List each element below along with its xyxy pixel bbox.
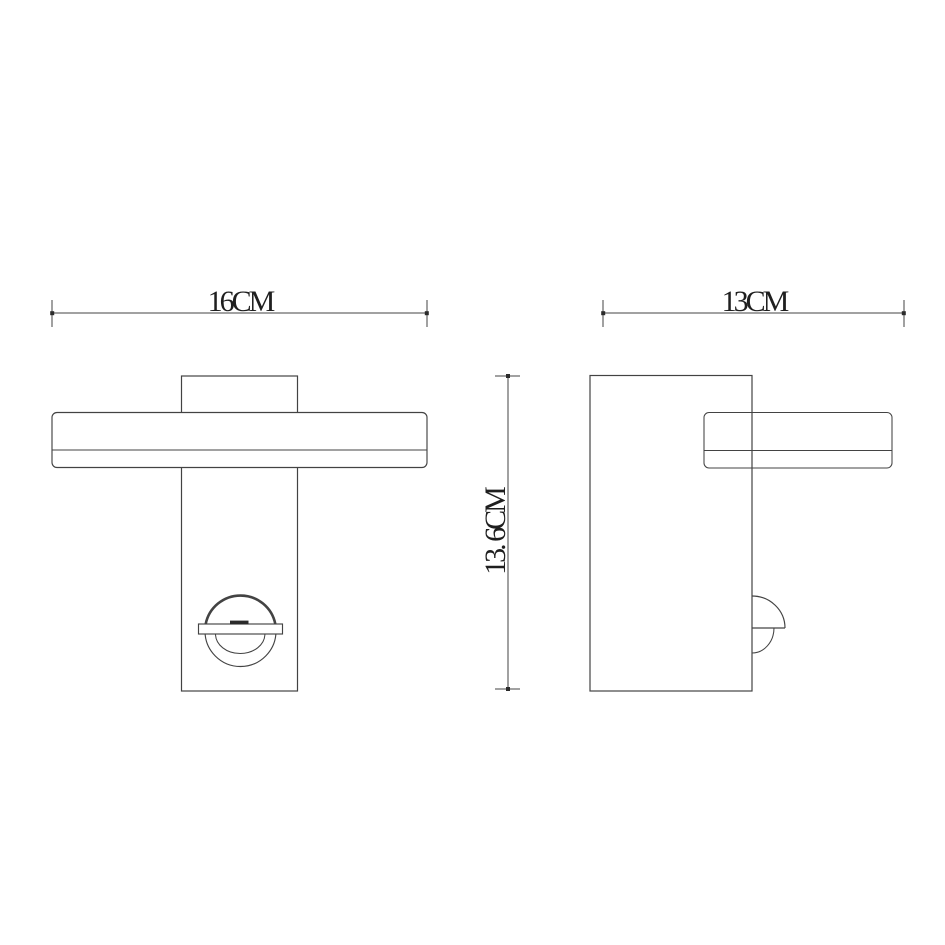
- height-top-tick-mark: [506, 374, 510, 378]
- front-width-left-tick-mark: [50, 311, 54, 315]
- side-depth-label: 13CM: [722, 285, 789, 318]
- side-sensor-inner-arc: [752, 628, 774, 653]
- technical-drawing-canvas: 16CM 13CM 13. 6CM: [0, 0, 945, 945]
- drawing-page: 16CM 13CM 13. 6CM: [0, 0, 945, 945]
- side-view-mounting-bar: [704, 413, 892, 469]
- side-sensor-dome-arc: [752, 596, 785, 628]
- dimension-front-width: 16CM: [50, 285, 429, 327]
- height-bottom-tick-mark: [506, 687, 510, 691]
- sensor-notch: [230, 621, 249, 625]
- front-view-sensor-knob: [199, 596, 283, 667]
- side-depth-right-tick-mark: [902, 311, 906, 315]
- side-depth-left-tick-mark: [601, 311, 605, 315]
- front-view: [52, 376, 427, 691]
- front-width-label: 16CM: [208, 285, 275, 318]
- dimension-height: 13. 6CM: [479, 374, 520, 691]
- height-label: 13. 6CM: [479, 487, 512, 575]
- side-view-body: [590, 376, 752, 692]
- side-view-sensor-knob: [752, 596, 785, 653]
- front-view-mounting-bar: [52, 413, 427, 468]
- dimension-side-depth: 13CM: [601, 285, 906, 327]
- side-view: [590, 376, 892, 692]
- sensor-band: [199, 624, 283, 634]
- front-width-right-tick-mark: [425, 311, 429, 315]
